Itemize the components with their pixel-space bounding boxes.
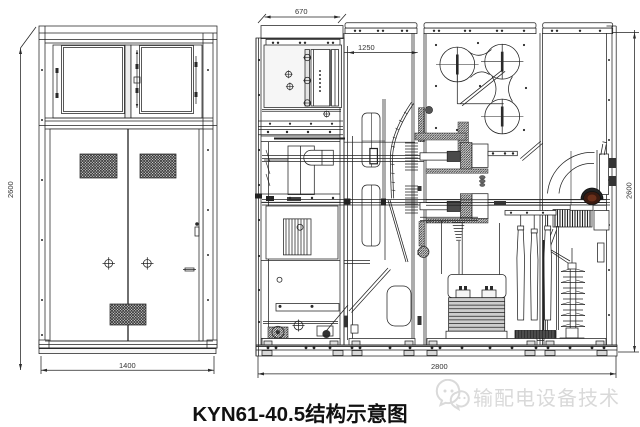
svg-text:2600: 2600 (6, 181, 15, 198)
svg-text:2800: 2800 (431, 362, 448, 371)
svg-text:1400: 1400 (119, 361, 136, 370)
svg-text:670: 670 (295, 7, 308, 16)
svg-text:1250: 1250 (358, 43, 375, 52)
svg-text:2600: 2600 (625, 182, 634, 199)
